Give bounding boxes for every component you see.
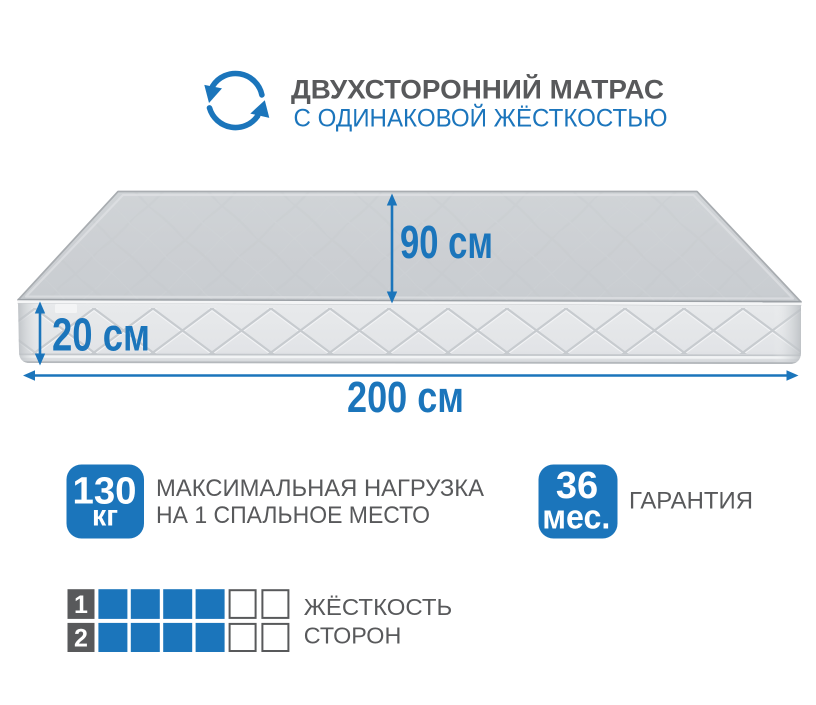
svg-text:ЖЁСТКОСТЬ: ЖЁСТКОСТЬ: [304, 594, 453, 620]
svg-text:кг: кг: [92, 500, 118, 533]
svg-text:90 см: 90 см: [400, 216, 493, 268]
svg-text:ГАРАНТИЯ: ГАРАНТИЯ: [629, 488, 753, 515]
svg-text:мес.: мес.: [542, 499, 610, 537]
svg-text:ДВУХСТОРОННИЙ МАТРАС: ДВУХСТОРОННИЙ МАТРАС: [291, 74, 664, 105]
svg-text:20 см: 20 см: [52, 309, 150, 361]
svg-text:200 см: 200 см: [347, 373, 464, 422]
svg-text:2: 2: [74, 624, 88, 652]
svg-text:СТОРОН: СТОРОН: [304, 623, 402, 649]
svg-text:МАКСИМАЛЬНАЯ НАГРУЗКА: МАКСИМАЛЬНАЯ НАГРУЗКА: [156, 475, 484, 502]
svg-text:1: 1: [74, 591, 88, 619]
svg-text:НА 1 СПАЛЬНОЕ МЕСТО: НА 1 СПАЛЬНОЕ МЕСТО: [156, 502, 430, 529]
svg-text:С ОДИНАКОВОЙ ЖЁСТКОСТЬЮ: С ОДИНАКОВОЙ ЖЁСТКОСТЬЮ: [294, 103, 668, 133]
